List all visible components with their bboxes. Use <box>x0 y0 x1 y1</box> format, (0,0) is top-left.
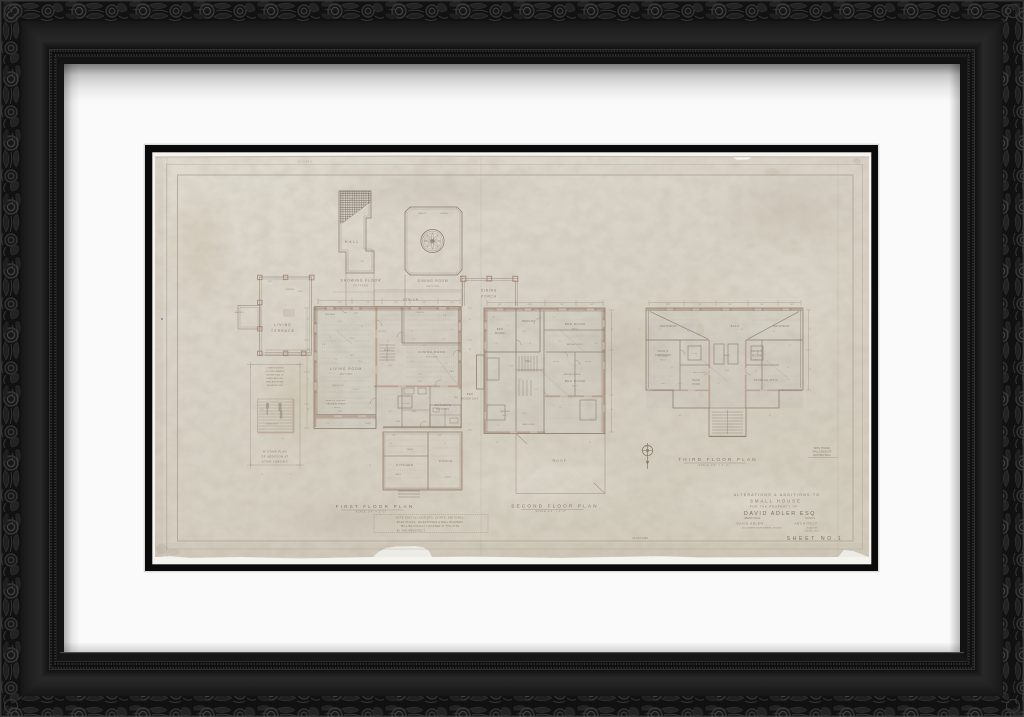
svg-text:ROOM: ROOM <box>658 354 668 358</box>
svg-text:11'6": 11'6" <box>666 304 671 306</box>
svg-text:NEW SASH: NEW SASH <box>325 313 336 316</box>
svg-text:MAID'S RM: MAID'S RM <box>522 423 534 426</box>
svg-text:LIVING ROOM: LIVING ROOM <box>330 367 362 371</box>
svg-text:1-9: 1-9 <box>717 383 720 385</box>
svg-text:W-4: W-4 <box>358 361 361 363</box>
svg-text:OF ADDITION AT: OF ADDITION AT <box>261 455 288 459</box>
svg-text:CEILING: CEILING <box>426 285 439 288</box>
svg-text:13'0": 13'0" <box>590 304 595 306</box>
svg-text:CLOS: CLOS <box>553 361 559 363</box>
svg-text:6'8": 6'8" <box>392 435 395 437</box>
svg-text:NEW WINDOW: NEW WINDOW <box>660 325 677 328</box>
svg-text:PORCH: PORCH <box>439 459 453 463</box>
svg-text:FOR THE PROPERTY OF: FOR THE PROPERTY OF <box>750 505 798 509</box>
svg-text:12'6": 12'6" <box>728 304 733 306</box>
svg-text:BASE: BASE <box>338 410 344 413</box>
svg-text:ROOF: ROOF <box>553 459 568 463</box>
svg-text:HALL: HALL <box>345 240 360 244</box>
svg-text:BED: BED <box>467 392 474 396</box>
svg-text:BY THE ARCHITECT: BY THE ARCHITECT <box>397 530 426 533</box>
svg-text:3-3: 3-3 <box>699 345 702 347</box>
svg-text:7'4": 7'4" <box>412 339 415 341</box>
svg-text:TABLE: TABLE <box>395 473 402 476</box>
svg-text:5-2: 5-2 <box>507 325 510 327</box>
svg-text:16'2": 16'2" <box>350 355 355 357</box>
svg-text:6-8: 6-8 <box>553 317 556 319</box>
svg-text:DRESS RM: DRESS RM <box>522 320 535 323</box>
svg-text:BED ALCOVE A: BED ALCOVE A <box>564 373 580 376</box>
svg-text:8-0: 8-0 <box>559 341 562 343</box>
svg-text:CLOS: CLOS <box>691 353 697 355</box>
svg-text:BED ALCOVE B: BED ALCOVE B <box>567 343 583 346</box>
svg-text:12'3": 12'3" <box>354 313 359 315</box>
svg-text:ROOM CHY: ROOM CHY <box>461 397 478 401</box>
svg-text:7'2": 7'2" <box>326 423 329 425</box>
svg-text:2-8: 2-8 <box>335 359 338 361</box>
svg-text:10'0": 10'0" <box>790 304 795 306</box>
svg-text:BED CLOSET: BED CLOSET <box>693 372 708 374</box>
svg-text:UP 17 R: UP 17 R <box>378 331 386 333</box>
svg-text:CLOSET: CLOSET <box>402 403 411 405</box>
svg-text:9'6": 9'6" <box>560 304 564 306</box>
svg-text:SHEET NO.1: SHEET NO.1 <box>787 536 844 542</box>
svg-text:12'6": 12'6" <box>338 302 343 304</box>
svg-text:16'0" x 19'0": 16'0" x 19'0" <box>426 357 438 359</box>
svg-text:N-12: N-12 <box>338 321 342 323</box>
svg-text:14'6": 14'6" <box>268 281 273 283</box>
svg-text:MAID'S: MAID'S <box>657 349 668 353</box>
svg-text:NOTED 1918: NOTED 1918 <box>805 531 819 533</box>
svg-text:NOTE THAT ALL OUTLETS, LIGHTS,: NOTE THAT ALL OUTLETS, LIGHTS, SWITCHES, <box>396 517 465 520</box>
svg-text:TYPE B: TYPE B <box>332 407 340 409</box>
svg-text:11'0": 11'0" <box>450 302 455 304</box>
svg-text:3-4: 3-4 <box>389 411 392 413</box>
svg-text:14'3": 14'3" <box>394 302 399 304</box>
svg-text:SASH AND FRAME: SASH AND FRAME <box>326 403 346 406</box>
svg-text:LIBERTYVILLE: LIBERTYVILLE <box>744 517 761 520</box>
svg-text:SHOWN AT LEFT: SHOWN AT LEFT <box>267 384 284 387</box>
svg-text:BUTLER'S: BUTLER'S <box>435 403 451 407</box>
svg-text:THIRD FLOOR PLAN: THIRD FLOOR PLAN <box>678 457 758 462</box>
svg-text:STORAGE ATTIC: STORAGE ATTIC <box>754 379 778 382</box>
svg-text:W: W <box>773 331 775 333</box>
svg-text:STAIR LANDING: STAIR LANDING <box>262 460 288 464</box>
svg-text:NO 4: NO 4 <box>660 360 666 362</box>
svg-text:WALLS INDICATE: WALLS INDICATE <box>813 451 832 454</box>
svg-text:SCALE 1/4" = 1'-0": SCALE 1/4" = 1'-0" <box>699 464 730 467</box>
svg-text:8'0": 8'0" <box>698 304 702 306</box>
svg-text:REMOVE PRESENT: REMOVE PRESENT <box>326 400 347 402</box>
svg-text:HALL: HALL <box>384 348 394 352</box>
svg-text:NO 5: NO 5 <box>754 360 760 362</box>
svg-text:BATH: BATH <box>731 324 740 328</box>
svg-text:5-8: 5-8 <box>787 367 790 369</box>
svg-text:FIRST FLOOR PLAN: FIRST FLOOR PLAN <box>336 504 415 509</box>
svg-text:NEW FLOOR: NEW FLOOR <box>332 385 344 387</box>
svg-text:NO 2: NO 2 <box>502 415 508 417</box>
svg-text:8'6": 8'6" <box>422 302 426 304</box>
svg-text:9'6": 9'6" <box>484 281 487 283</box>
svg-text:10'6": 10'6" <box>498 304 503 306</box>
svg-text:8'6": 8'6" <box>322 344 325 346</box>
svg-text:4-6: 4-6 <box>529 343 532 345</box>
svg-text:COATS: COATS <box>365 422 372 425</box>
svg-text:MAID'S: MAID'S <box>751 349 762 353</box>
svg-text:7-2: 7-2 <box>329 337 332 339</box>
svg-text:SHOWS PLAN OF: SHOWS PLAN OF <box>266 374 284 377</box>
svg-text:11-3: 11-3 <box>444 363 447 365</box>
svg-text:W: W <box>687 331 689 333</box>
svg-text:SMALL HOUSE: SMALL HOUSE <box>750 499 802 504</box>
svg-text:9'0": 9'0" <box>366 302 370 304</box>
svg-text:SINK: SINK <box>396 421 401 423</box>
svg-text:NO 2: NO 2 <box>572 329 578 331</box>
svg-text:W1: W1 <box>493 317 496 319</box>
svg-text:PATTERN: PATTERN <box>353 284 368 288</box>
svg-text:SHOWING FLOOR: SHOWING FLOOR <box>341 279 382 283</box>
svg-text:CASE: CASE <box>411 410 417 413</box>
svg-text:STOR: STOR <box>678 383 684 385</box>
svg-text:ALTERATIONS & ADDITIONS TO: ALTERATIONS & ADDITIONS TO <box>734 493 821 497</box>
svg-text:STAIRS AND WILL: STAIRS AND WILL <box>266 377 284 380</box>
svg-text:16 OCT 1918: 16 OCT 1918 <box>632 536 648 540</box>
svg-text:7-0: 7-0 <box>725 345 728 347</box>
svg-text:1244 NORTH STATE STREET CHICAG: 1244 NORTH STATE STREET CHICAGO <box>742 527 783 530</box>
svg-text:3-0: 3-0 <box>519 379 522 381</box>
svg-text:22'0" x 30'0": 22'0" x 30'0" <box>339 373 352 376</box>
svg-text:9-6: 9-6 <box>411 331 414 333</box>
svg-text:5-4: 5-4 <box>559 407 562 409</box>
svg-text:LANDING: LANDING <box>266 423 278 426</box>
svg-text:DINING ROOM: DINING ROOM <box>418 279 449 283</box>
svg-text:HALL: HALL <box>525 360 532 363</box>
svg-text:OF THIS DRAWING: OF THIS DRAWING <box>266 370 285 373</box>
svg-text:CHY: CHY <box>661 383 666 385</box>
svg-text:REPLACE DETAIL: REPLACE DETAIL <box>266 381 284 384</box>
svg-text:2-2: 2-2 <box>497 425 500 427</box>
svg-text:NO 1: NO 1 <box>572 386 578 388</box>
svg-text:SCALE 1/4" = 1'-0": SCALE 1/4" = 1'-0" <box>356 511 387 514</box>
svg-text:RANGE: RANGE <box>407 448 414 451</box>
svg-text:BED ROOM: BED ROOM <box>565 379 586 383</box>
svg-text:6-5: 6-5 <box>789 345 792 347</box>
svg-text:PLAN OF: PLAN OF <box>418 212 427 215</box>
svg-text:4-0: 4-0 <box>411 361 414 363</box>
svg-text:NEW: NEW <box>450 371 455 373</box>
svg-text:DN: DN <box>725 370 729 372</box>
svg-text:GARDEN: GARDEN <box>234 311 244 314</box>
svg-text:EXISTING WALL: EXISTING WALL <box>813 454 831 457</box>
svg-text:4-8: 4-8 <box>741 329 744 331</box>
svg-text:ROOM: ROOM <box>692 383 699 386</box>
svg-text:9'1": 9'1" <box>442 339 445 341</box>
svg-text:BED ROOM: BED ROOM <box>565 322 586 326</box>
svg-text:ARCHITECT: ARCHITECT <box>794 522 817 526</box>
svg-text:PLASTER: PLASTER <box>416 311 425 314</box>
svg-text:STEPS: STEPS <box>445 477 452 479</box>
svg-text:KITCHEN: KITCHEN <box>396 463 414 467</box>
svg-text:SCALE AS: SCALE AS <box>807 527 818 530</box>
svg-text:W STAIR PLAN: W STAIR PLAN <box>263 450 287 454</box>
svg-text:DINING: DINING <box>481 289 497 293</box>
svg-text:D-2: D-2 <box>451 329 454 331</box>
svg-text:BASE PLUGS, TELEPHONES & BELL: BASE PLUGS, TELEPHONES & BELL BUZZERS <box>397 521 464 524</box>
svg-text:HALL: HALL <box>724 354 730 357</box>
svg-text:NOTE SHADED: NOTE SHADED <box>814 447 831 450</box>
svg-text:DAVID ADLER: DAVID ADLER <box>737 522 764 526</box>
svg-text:W3: W3 <box>591 419 594 421</box>
svg-text:4'-6": 4'-6" <box>281 438 285 440</box>
svg-text:FLOOR: FLOOR <box>353 389 360 391</box>
svg-text:5'6": 5'6" <box>418 381 421 383</box>
svg-text:3-1: 3-1 <box>755 371 758 373</box>
svg-text:W2: W2 <box>595 343 598 345</box>
svg-text:BATH RM: BATH RM <box>500 410 510 413</box>
svg-text:12'0": 12'0" <box>528 304 533 306</box>
svg-text:LIN: LIN <box>509 365 513 367</box>
svg-text:TERRACE: TERRACE <box>271 329 295 333</box>
svg-text:SCALE 1/4" = 1'-0": SCALE 1/4" = 1'-0" <box>536 510 567 513</box>
svg-text:CEILING: CEILING <box>440 213 448 215</box>
svg-text:2-9: 2-9 <box>671 367 674 369</box>
svg-text:ROOM: ROOM <box>752 354 762 358</box>
svg-text:7-6: 7-6 <box>535 389 538 391</box>
svg-text:LIVING: LIVING <box>274 323 292 327</box>
svg-text:ATRIUM: ATRIUM <box>403 298 419 302</box>
svg-text:6'0": 6'0" <box>443 315 446 317</box>
svg-text:SECOND FLOOR PLAN: SECOND FLOOR PLAN <box>511 504 598 509</box>
svg-text:8'0": 8'0" <box>438 435 441 437</box>
svg-text:2-10: 2-10 <box>494 343 498 345</box>
svg-text:PORCH: PORCH <box>481 295 497 299</box>
svg-text:CLOS: CLOS <box>585 361 591 363</box>
svg-text:6-1: 6-1 <box>659 329 662 331</box>
svg-text:BED: BED <box>497 327 504 331</box>
svg-text:TERRACE: TERRACE <box>285 288 295 291</box>
svg-text:3-6: 3-6 <box>361 326 364 328</box>
svg-text:9'0": 9'0" <box>760 304 764 306</box>
svg-text:DINING ROOM: DINING ROOM <box>419 350 446 354</box>
svg-text:STEP: STEP <box>298 291 304 293</box>
svg-text:ROOM: ROOM <box>495 331 505 335</box>
svg-text:PANEL: PANEL <box>349 337 355 340</box>
svg-text:NEW WINDOW: NEW WINDOW <box>773 325 790 328</box>
svg-text:6-0: 6-0 <box>329 373 332 375</box>
svg-text:TRUNK: TRUNK <box>692 379 701 382</box>
svg-text:ILLINOIS: ILLINOIS <box>805 517 815 520</box>
svg-text:PANTRY: PANTRY <box>436 407 449 411</box>
svg-text:WILL BE FINALLY LOCATED AT THE: WILL BE FINALLY LOCATED AT THE SITE <box>401 525 460 528</box>
svg-text:No 1248 A: No 1248 A <box>298 161 313 164</box>
svg-text:LOWER PORTION: LOWER PORTION <box>266 368 284 370</box>
